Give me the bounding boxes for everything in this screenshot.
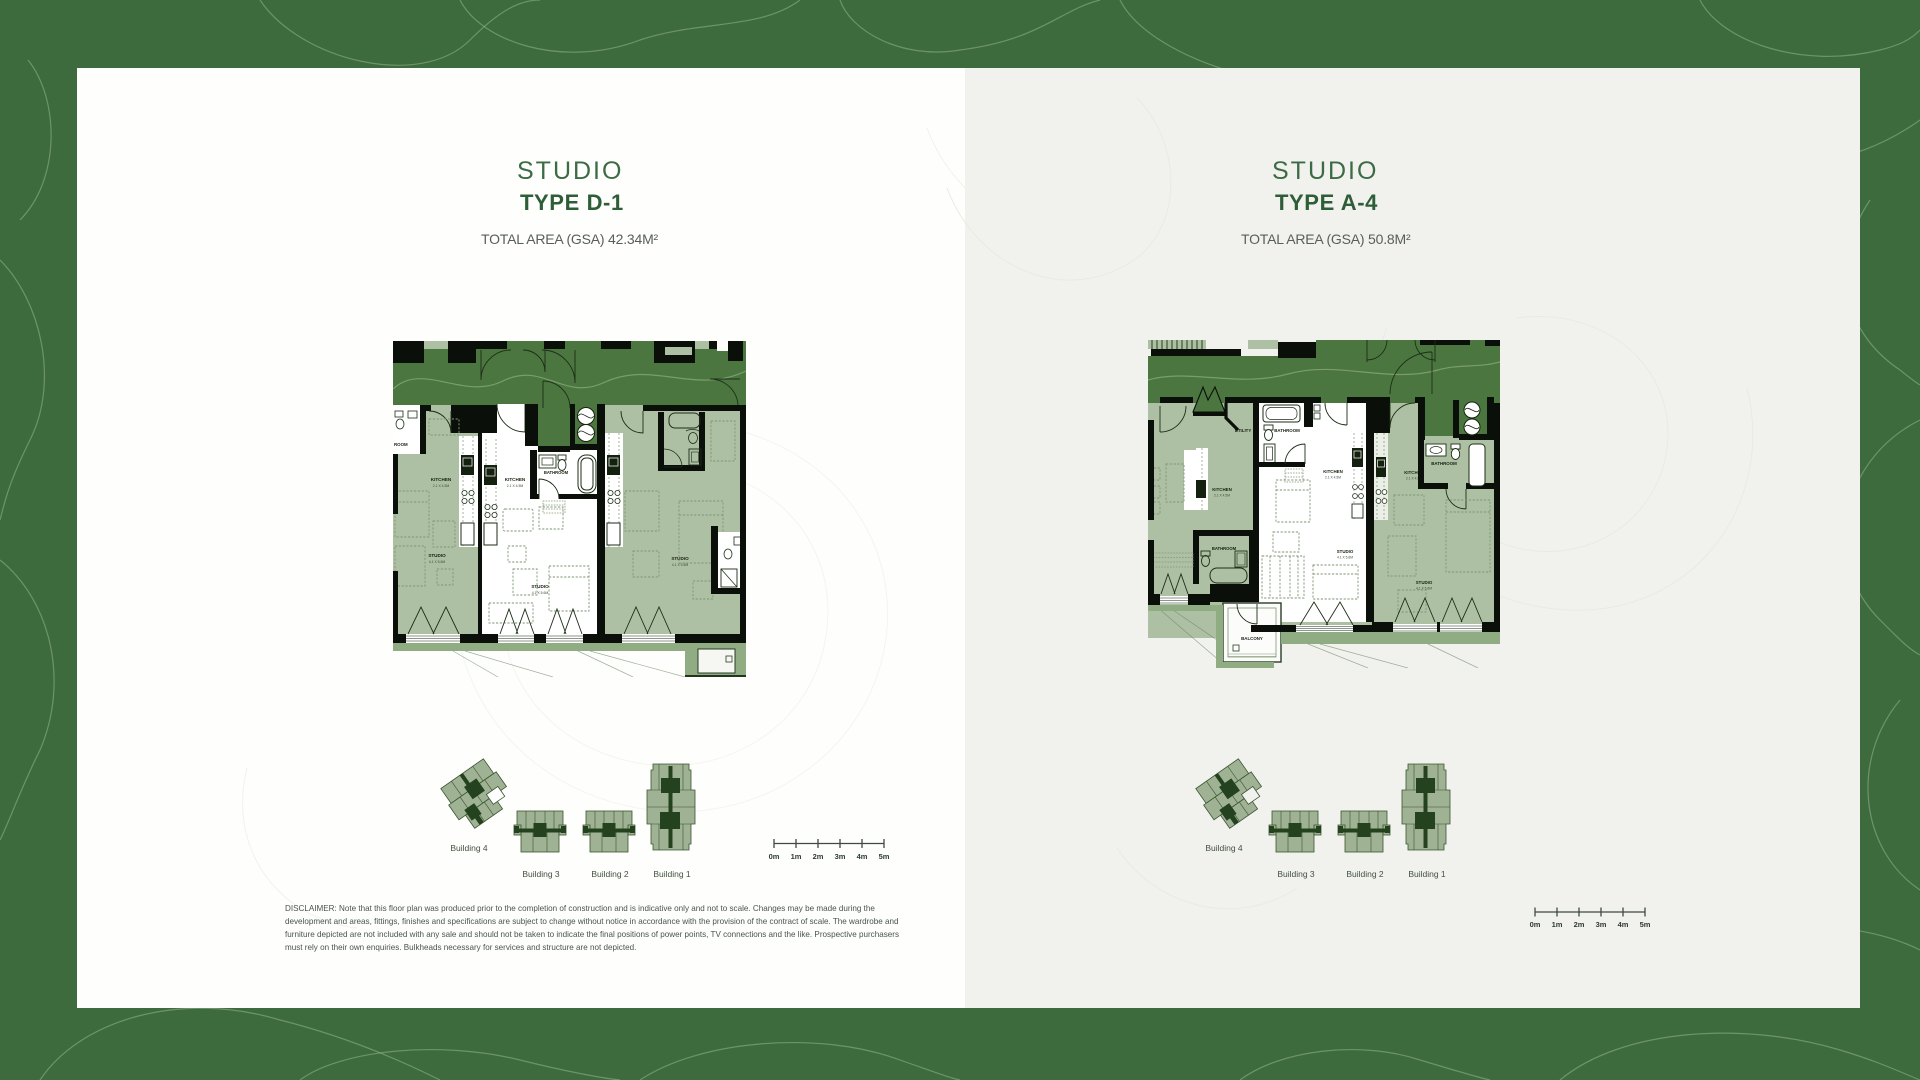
svg-text:3m: 3m bbox=[1596, 920, 1607, 929]
svg-text:KITCHEN: KITCHEN bbox=[1212, 487, 1232, 492]
svg-text:KITCHEN: KITCHEN bbox=[431, 477, 452, 482]
svg-text:5m: 5m bbox=[879, 852, 890, 861]
svg-text:KITCHEN: KITCHEN bbox=[1323, 469, 1343, 474]
svg-text:4m: 4m bbox=[857, 852, 868, 861]
svg-text:2m: 2m bbox=[813, 852, 824, 861]
svg-text:Building 2: Building 2 bbox=[591, 869, 629, 879]
svg-text:4.1 X 5.6M: 4.1 X 5.6M bbox=[1337, 556, 1353, 560]
svg-text:Building 3: Building 3 bbox=[522, 869, 560, 879]
svg-text:ROOM: ROOM bbox=[394, 442, 408, 447]
svg-text:5m: 5m bbox=[1640, 920, 1651, 929]
svg-text:STUDIO: STUDIO bbox=[428, 553, 446, 558]
svg-text:2m: 2m bbox=[1574, 920, 1585, 929]
svg-text:Building 4: Building 4 bbox=[450, 843, 488, 853]
svg-text:KITCHEN: KITCHEN bbox=[505, 477, 526, 482]
svg-text:2.1 X 4.5M: 2.1 X 4.5M bbox=[507, 484, 524, 488]
svg-text:3m: 3m bbox=[835, 852, 846, 861]
svg-text:STUDIO: STUDIO bbox=[1337, 549, 1354, 554]
svg-text:4m: 4m bbox=[1618, 920, 1629, 929]
svg-text:2.1 X 4.5M: 2.1 X 4.5M bbox=[1214, 494, 1230, 498]
svg-text:BATHROOM: BATHROOM bbox=[1274, 428, 1300, 433]
svg-text:4.1 X 5.6M: 4.1 X 5.6M bbox=[429, 560, 446, 564]
svg-text:Building 1: Building 1 bbox=[1408, 869, 1446, 879]
svg-text:Building 3: Building 3 bbox=[1277, 869, 1315, 879]
svg-text:BATHROOM: BATHROOM bbox=[1431, 461, 1457, 466]
svg-text:STUDIO: STUDIO bbox=[671, 556, 689, 561]
svg-text:2.1 X 4.5M: 2.1 X 4.5M bbox=[433, 484, 450, 488]
svg-text:Building 4: Building 4 bbox=[1205, 843, 1243, 853]
svg-text:BALCONY: BALCONY bbox=[1241, 636, 1263, 641]
svg-text:Building 2: Building 2 bbox=[1346, 869, 1384, 879]
svg-text:STUDIO: STUDIO bbox=[1416, 580, 1433, 585]
svg-text:BATHROOM: BATHROOM bbox=[1212, 546, 1237, 551]
svg-text:4.1 X 5.6M: 4.1 X 5.6M bbox=[532, 591, 549, 595]
svg-text:0m: 0m bbox=[769, 852, 780, 861]
svg-text:STUDIO: STUDIO bbox=[531, 584, 549, 589]
svg-text:BATHROOM: BATHROOM bbox=[544, 470, 569, 475]
svg-text:1m: 1m bbox=[791, 852, 802, 861]
svg-text:2.1 X 4.5M: 2.1 X 4.5M bbox=[1325, 476, 1341, 480]
svg-text:Building 1: Building 1 bbox=[653, 869, 691, 879]
svg-text:4.1 X 5.6M: 4.1 X 5.6M bbox=[672, 563, 689, 567]
svg-text:0m: 0m bbox=[1530, 920, 1541, 929]
svg-text:1m: 1m bbox=[1552, 920, 1563, 929]
